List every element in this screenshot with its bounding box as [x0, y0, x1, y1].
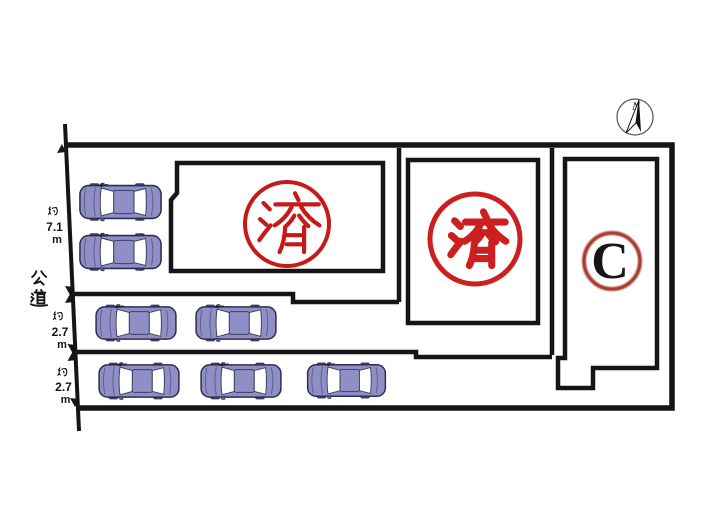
lot-1-outline: [171, 163, 383, 271]
car-icon: [99, 363, 179, 400]
lot-letter: C: [591, 233, 629, 290]
divider-row2-row3: [72, 352, 552, 357]
dimension-7-1: 7.1 m: [46, 207, 63, 246]
kanji-sai-icon: [259, 193, 319, 252]
car-icon: [201, 363, 281, 400]
site-plan-drawing: 7.1 m 2.7 m 2.7 m: [0, 0, 705, 525]
kanji-yaku-icon: [48, 207, 57, 215]
kanji-yaku-icon: [58, 368, 67, 376]
kanji-dou-icon: [31, 290, 47, 306]
car-icon: [80, 183, 161, 220]
kanji-kou-icon: [32, 271, 46, 284]
lot-1-sold-stamp: [245, 182, 329, 266]
dim-value: 2.7: [52, 325, 69, 339]
car-icon: [96, 305, 176, 342]
divider-row1-row2: [70, 294, 399, 302]
lot-3-c-badge: C: [584, 233, 640, 290]
road-label: [31, 271, 47, 306]
dim-unit: m: [57, 339, 67, 351]
dim-value: 7.1: [46, 220, 63, 234]
dimension-2-7-a: 2.7 m: [52, 312, 69, 351]
dim-unit: m: [52, 234, 62, 246]
car-icon: [308, 363, 386, 399]
car-icon: [196, 305, 276, 342]
kanji-sai-icon: [451, 212, 506, 266]
car-icon: [80, 233, 161, 270]
dimension-2-7-b: 2.7 m: [55, 368, 72, 406]
dim-value: 2.7: [55, 380, 72, 394]
parked-cars: [80, 183, 385, 399]
kanji-yaku-icon: [53, 312, 62, 320]
dim-unit: m: [61, 394, 71, 406]
compass: N: [617, 99, 653, 135]
site-plan: 公道 約 済 済: [0, 0, 705, 525]
lot-2-sold-stamp: [430, 194, 520, 284]
